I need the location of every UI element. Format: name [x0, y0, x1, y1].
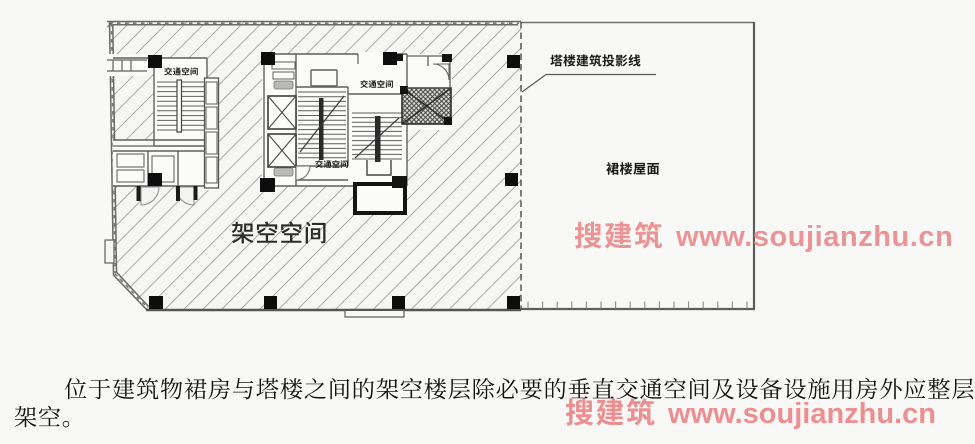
svg-text:www.soujianzhu.cn: www.soujianzhu.cn — [675, 221, 953, 253]
svg-text:www.soujianzhu.cn: www.soujianzhu.cn — [667, 398, 936, 430]
